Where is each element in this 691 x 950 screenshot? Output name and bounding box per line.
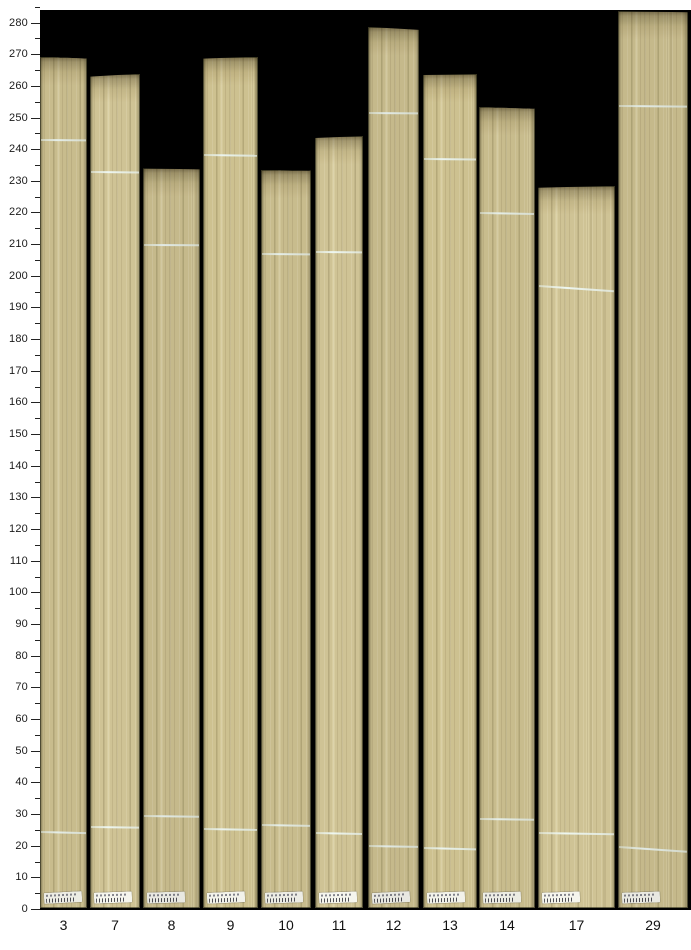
y-major-tick xyxy=(31,687,40,688)
barcode-sticker xyxy=(542,892,580,904)
y-minor-tick xyxy=(35,798,40,799)
y-tick-label: 70 xyxy=(0,681,28,694)
lower-chalk-line xyxy=(91,826,139,829)
y-minor-tick xyxy=(35,38,40,39)
y-major-tick xyxy=(31,212,40,213)
y-tick-label: 40 xyxy=(0,776,28,789)
y-major-tick xyxy=(31,118,40,119)
y-minor-tick xyxy=(35,165,40,166)
y-minor-tick xyxy=(35,450,40,451)
y-minor-tick xyxy=(35,672,40,673)
y-minor-tick xyxy=(35,545,40,546)
y-minor-tick xyxy=(35,577,40,578)
y-major-tick xyxy=(31,466,40,467)
lower-chalk-line xyxy=(480,818,534,821)
board-10 xyxy=(261,170,311,909)
y-tick-label: 180 xyxy=(0,333,28,346)
y-tick-label: 190 xyxy=(0,301,28,314)
barcode-sticker xyxy=(265,892,303,904)
y-tick-label: 160 xyxy=(0,396,28,409)
y-tick-label: 260 xyxy=(0,80,28,93)
y-tick-label: 130 xyxy=(0,491,28,504)
y-tick-label: 10 xyxy=(0,871,28,884)
y-minor-tick xyxy=(35,418,40,419)
board-3 xyxy=(40,57,87,909)
board-29 xyxy=(618,11,688,908)
y-major-tick xyxy=(31,656,40,657)
upper-chalk-line xyxy=(262,253,310,255)
y-major-tick xyxy=(31,782,40,783)
y-minor-tick xyxy=(35,830,40,831)
y-major-tick xyxy=(31,307,40,308)
lower-chalk-line xyxy=(369,845,418,848)
y-major-tick xyxy=(31,23,40,24)
board-13 xyxy=(423,74,477,909)
y-major-tick xyxy=(31,751,40,752)
y-minor-tick xyxy=(35,608,40,609)
y-axis: 0102030405060708090100110120130140150160… xyxy=(0,0,40,950)
barcode-sticker xyxy=(44,891,83,904)
y-major-tick xyxy=(31,497,40,498)
board-length-chart: 0102030405060708090100110120130140150160… xyxy=(0,0,691,950)
y-minor-tick xyxy=(35,133,40,134)
y-major-tick xyxy=(31,86,40,87)
y-tick-label: 220 xyxy=(0,206,28,219)
y-tick-label: 240 xyxy=(0,143,28,156)
y-minor-tick xyxy=(35,893,40,894)
y-tick-label: 270 xyxy=(0,48,28,61)
y-minor-tick xyxy=(35,387,40,388)
barcode-sticker xyxy=(94,892,132,904)
y-tick-label: 230 xyxy=(0,175,28,188)
y-minor-tick xyxy=(35,355,40,356)
y-minor-tick xyxy=(35,197,40,198)
y-minor-tick xyxy=(35,703,40,704)
upper-chalk-line xyxy=(480,212,534,215)
y-major-tick xyxy=(31,371,40,372)
y-major-tick xyxy=(31,54,40,55)
y-minor-tick xyxy=(35,102,40,103)
board-11 xyxy=(315,136,363,908)
y-major-tick xyxy=(31,719,40,720)
y-tick-label: 210 xyxy=(0,238,28,251)
board-8 xyxy=(143,168,200,908)
y-minor-tick xyxy=(35,323,40,324)
lower-chalk-line xyxy=(144,815,199,818)
y-major-tick xyxy=(31,149,40,150)
y-major-tick xyxy=(31,592,40,593)
y-major-tick xyxy=(31,909,40,910)
barcode-sticker xyxy=(319,892,357,904)
y-minor-tick xyxy=(35,640,40,641)
upper-chalk-line xyxy=(619,105,687,108)
y-major-tick xyxy=(31,877,40,878)
y-tick-label: 280 xyxy=(0,17,28,30)
y-tick-label: 50 xyxy=(0,745,28,758)
upper-chalk-line xyxy=(539,285,614,292)
lower-chalk-line xyxy=(424,847,476,850)
y-minor-tick xyxy=(35,482,40,483)
y-major-tick xyxy=(31,434,40,435)
board-9 xyxy=(203,57,258,909)
y-tick-label: 20 xyxy=(0,840,28,853)
y-minor-tick xyxy=(35,735,40,736)
y-tick-label: 110 xyxy=(0,555,28,568)
barcode-sticker xyxy=(207,892,245,905)
lower-chalk-line xyxy=(41,831,86,834)
y-tick-label: 170 xyxy=(0,365,28,378)
y-tick-label: 250 xyxy=(0,112,28,125)
barcode-sticker xyxy=(427,892,465,904)
y-minor-tick xyxy=(35,513,40,514)
y-tick-label: 140 xyxy=(0,460,28,473)
y-minor-tick xyxy=(35,260,40,261)
y-major-tick xyxy=(31,846,40,847)
y-major-tick xyxy=(31,181,40,182)
board-12 xyxy=(368,27,419,909)
y-major-tick xyxy=(31,814,40,815)
upper-chalk-line xyxy=(144,244,199,246)
upper-chalk-line xyxy=(204,154,257,157)
lower-chalk-line xyxy=(204,828,257,831)
barcode-sticker xyxy=(622,892,660,904)
board-17 xyxy=(538,186,615,909)
barcode-sticker xyxy=(483,892,521,904)
y-tick-label: 60 xyxy=(0,713,28,726)
upper-chalk-line xyxy=(369,112,418,114)
y-minor-tick xyxy=(35,228,40,229)
y-minor-tick xyxy=(35,862,40,863)
lower-chalk-line xyxy=(262,824,310,827)
y-major-tick xyxy=(31,529,40,530)
y-tick-label: 90 xyxy=(0,618,28,631)
y-tick-label: 80 xyxy=(0,650,28,663)
barcode-sticker xyxy=(372,891,411,904)
upper-chalk-line xyxy=(316,251,362,253)
y-tick-label: 120 xyxy=(0,523,28,536)
y-minor-tick xyxy=(35,767,40,768)
upper-chalk-line xyxy=(41,139,86,141)
board-7 xyxy=(90,74,140,909)
y-minor-tick xyxy=(35,7,40,8)
upper-chalk-line xyxy=(424,158,476,161)
y-minor-tick xyxy=(35,70,40,71)
y-major-tick xyxy=(31,402,40,403)
y-major-tick xyxy=(31,624,40,625)
y-major-tick xyxy=(31,244,40,245)
y-tick-label: 0 xyxy=(0,903,28,916)
barcode-sticker xyxy=(147,892,185,904)
upper-chalk-line xyxy=(91,171,139,174)
y-minor-tick xyxy=(35,292,40,293)
lower-chalk-line xyxy=(539,832,614,835)
y-major-tick xyxy=(31,561,40,562)
y-tick-label: 200 xyxy=(0,270,28,283)
board-14 xyxy=(479,107,535,909)
lower-chalk-line xyxy=(619,846,687,853)
y-tick-label: 30 xyxy=(0,808,28,821)
x-tick-label: 29 xyxy=(608,917,691,933)
y-tick-label: 150 xyxy=(0,428,28,441)
y-major-tick xyxy=(31,276,40,277)
lower-chalk-line xyxy=(316,832,362,835)
y-tick-label: 100 xyxy=(0,586,28,599)
y-major-tick xyxy=(31,339,40,340)
